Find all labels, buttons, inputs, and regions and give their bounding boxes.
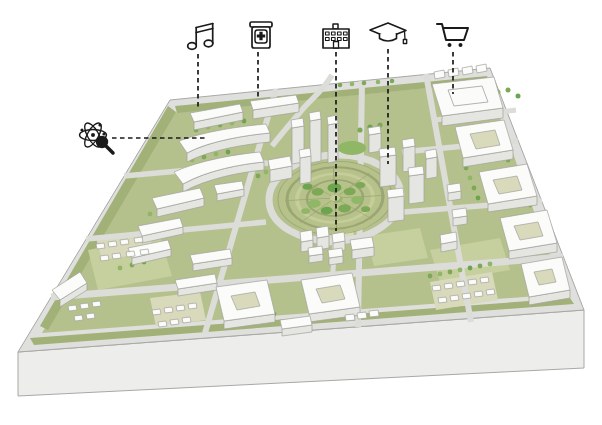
shopping-cart-icon — [437, 24, 468, 47]
city-map-illustration — [0, 0, 602, 425]
medicine-jar-icon — [250, 22, 272, 48]
music-note-icon — [188, 24, 213, 50]
civic-building-icon — [323, 24, 349, 48]
map-svg — [0, 0, 602, 425]
atom-magnifier-icon — [80, 121, 114, 153]
graduation-cap-icon — [370, 23, 407, 44]
